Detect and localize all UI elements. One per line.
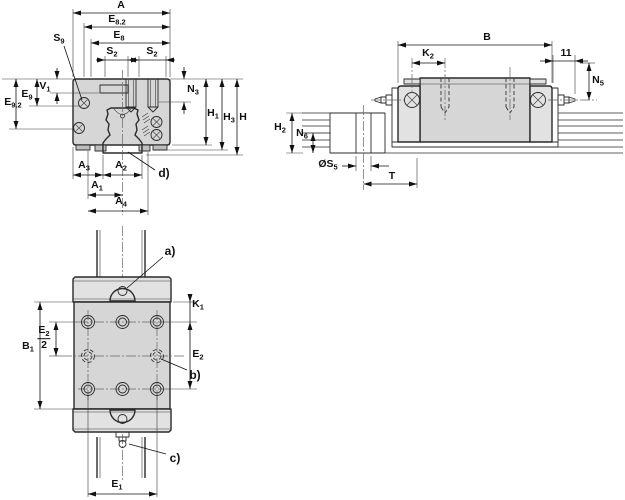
dim-label-S2-left: S2 (106, 46, 117, 58)
dim-label-T: T (389, 171, 395, 183)
dim-label-S5: ØS5 (318, 159, 337, 171)
dim-label-H1: H1 (207, 108, 219, 120)
dim-label-H: H (239, 112, 247, 124)
seal-strip (392, 142, 558, 147)
carriage-foot-left (76, 145, 90, 150)
seal-lip-right (139, 145, 150, 151)
callout-d: d) (158, 167, 169, 179)
dim-label-E8.2: E8.2 (108, 14, 125, 26)
dim-label-E9: E9 (21, 89, 32, 101)
dim-label-A4: A4 (115, 196, 127, 208)
callout-c: c) (170, 452, 181, 464)
dim-label-S9: S9 (53, 33, 64, 45)
dim-label-A1: A1 (91, 180, 103, 192)
technical-drawing: A E8.2 E8 S2 S2 S9 V1 E9 E9.2 N3 H1 H3 H… (0, 0, 625, 500)
dim-label-A: A (117, 0, 125, 12)
dim-label-V1: V1 (39, 81, 50, 93)
dim-label-A3: A3 (78, 160, 90, 172)
dim-label-A2: A2 (115, 160, 127, 172)
seal-lip-left (95, 145, 106, 151)
dim-label-E2: E2 (192, 349, 203, 361)
dim-label-N5: N5 (592, 75, 604, 87)
dim-label-E8: E8 (113, 30, 124, 42)
dim-label-K2: K2 (422, 48, 434, 60)
lube-nipple-right (548, 95, 597, 105)
dim-label-E9.2: E9.2 (4, 97, 21, 109)
callout-a: a) (165, 245, 176, 257)
dim-label-H3: H3 (223, 112, 235, 124)
dim-label-E1: E1 (111, 479, 122, 491)
dim-label-B: B (483, 32, 491, 44)
dim-label-B1: B1 (22, 341, 34, 353)
dim-label-H2: H2 (274, 122, 286, 134)
dim-label-N3: N3 (187, 84, 199, 96)
carriage-foot-right (153, 145, 167, 150)
callout-b: b) (189, 369, 200, 381)
drawing-canvas (0, 0, 625, 500)
leader-c (129, 444, 166, 454)
dim-label-11: 11 (560, 48, 571, 60)
dim-label-S2-right: S2 (146, 46, 157, 58)
dim-label-E2-half: E2 2 (37, 325, 50, 351)
dim-label-N6: N6 (296, 128, 308, 140)
carriage-body-side (420, 78, 530, 142)
dim-label-K1: K1 (192, 299, 204, 311)
